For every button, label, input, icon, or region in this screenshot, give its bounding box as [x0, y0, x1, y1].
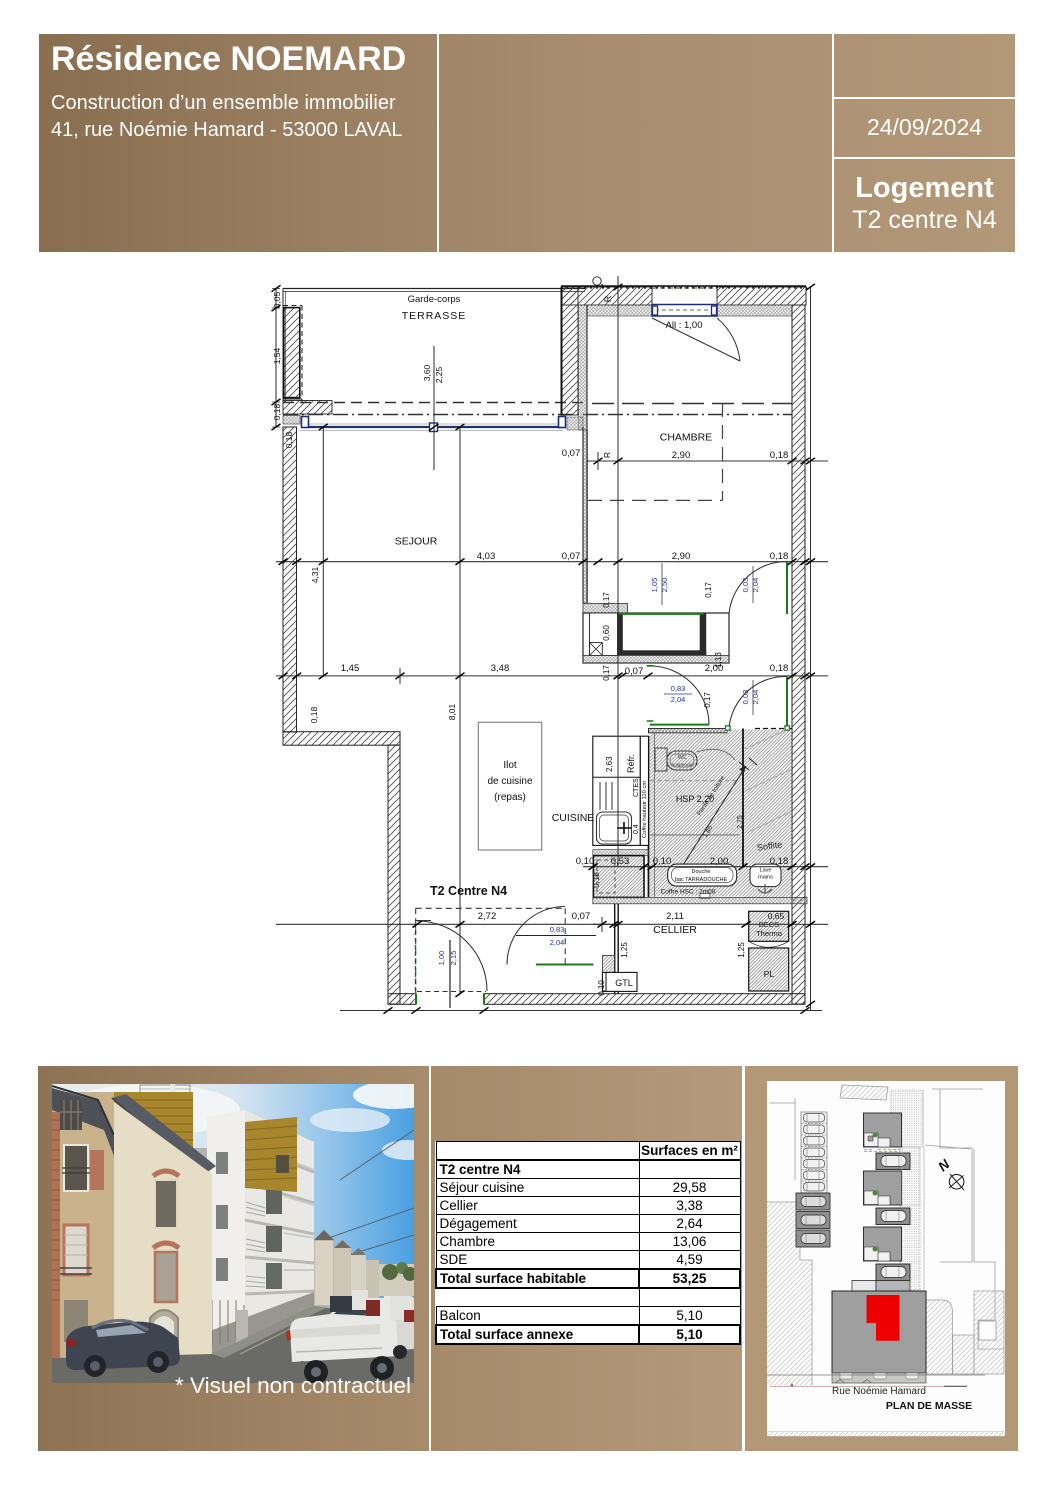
svg-text:Ilot: Ilot [503, 760, 517, 771]
svg-text:R: R [602, 452, 612, 458]
svg-text:Lave: Lave [760, 868, 772, 874]
svg-text:1,13: 1,13 [714, 652, 723, 668]
svg-text:0,18: 0,18 [770, 856, 789, 867]
svg-text:0,17: 0,17 [704, 582, 713, 598]
svg-text:GTL: GTL [615, 978, 633, 988]
svg-text:0,07: 0,07 [572, 911, 591, 922]
svg-text:0,07: 0,07 [562, 551, 581, 562]
svg-text:2,11: 2,11 [666, 911, 684, 922]
svg-text:2,04: 2,04 [751, 578, 760, 593]
svg-text:CELLIER: CELLIER [653, 924, 697, 936]
svg-text:0,10: 0,10 [576, 856, 595, 867]
svg-text:0,83: 0,83 [550, 925, 565, 934]
svg-text:R: R [603, 295, 613, 302]
svg-text:0,10: 0,10 [653, 856, 672, 867]
svg-text:(repas): (repas) [494, 792, 526, 803]
svg-text:N: N [935, 1156, 952, 1174]
svg-text:0,03: 0,03 [741, 578, 750, 593]
svg-text:2,04: 2,04 [751, 690, 760, 705]
svg-text:1,05: 1,05 [650, 578, 659, 593]
svg-text:2,50: 2,50 [660, 578, 669, 593]
svg-text:2,63: 2,63 [605, 756, 614, 772]
svg-text:0,18: 0,18 [592, 872, 601, 888]
svg-text:SEJOUR: SEJOUR [395, 536, 438, 548]
svg-text:All : 1,00: All : 1,00 [666, 320, 703, 331]
svg-text:0,65: 0,65 [768, 911, 785, 921]
svg-text:HSP 2,20: HSP 2,20 [676, 794, 714, 804]
svg-text:0,60: 0,60 [602, 625, 611, 641]
svg-text:8,01: 8,01 [447, 703, 457, 720]
svg-text:0,18: 0,18 [770, 450, 789, 461]
svg-text:0,17: 0,17 [703, 692, 712, 708]
svg-text:Réfr.: Réfr. [626, 754, 636, 773]
svg-text:0,17: 0,17 [602, 592, 611, 608]
svg-text:3,48: 3,48 [491, 663, 510, 674]
svg-text:4,03: 4,03 [477, 551, 496, 562]
svg-text:0,18: 0,18 [284, 431, 294, 448]
svg-text:CHAMBRE: CHAMBRE [660, 432, 713, 444]
svg-text:2,72: 2,72 [478, 911, 497, 922]
svg-text:0,07: 0,07 [562, 448, 581, 459]
svg-text:0,53: 0,53 [611, 856, 630, 867]
svg-text:T2 Centre N4: T2 Centre N4 [430, 884, 507, 898]
svg-text:0,05: 0,05 [272, 291, 282, 308]
svg-text:1,25: 1,25 [737, 942, 746, 958]
svg-text:Coffre hauteur 110 cm: Coffre hauteur 110 cm [642, 781, 648, 838]
svg-text:0,07: 0,07 [625, 666, 644, 677]
svg-text:CTES.: CTES. [633, 776, 640, 797]
svg-text:0,10: 0,10 [597, 980, 606, 996]
svg-text:2,04: 2,04 [671, 695, 686, 704]
svg-text:3,60: 3,60 [422, 364, 432, 381]
svg-text:0,18: 0,18 [770, 663, 789, 674]
svg-text:1,45: 1,45 [341, 663, 360, 674]
svg-text:0,83: 0,83 [671, 684, 686, 693]
svg-text:PL: PL [764, 969, 775, 979]
svg-text:TERRASSE: TERRASSE [402, 310, 467, 322]
svg-text:PLAN DE MASSE: PLAN DE MASSE [886, 1400, 972, 1412]
svg-text:0,18: 0,18 [309, 706, 319, 723]
svg-text:2,25: 2,25 [434, 366, 444, 383]
svg-text:Garde-corps: Garde-corps [408, 294, 461, 305]
svg-text:bac TARRADOUCHE: bac TARRADOUCHE [675, 877, 728, 883]
svg-text:Douche: Douche [692, 869, 711, 875]
svg-text:1,25: 1,25 [620, 942, 629, 958]
svg-text:0,03: 0,03 [741, 690, 750, 705]
svg-text:4,31: 4,31 [310, 566, 320, 583]
svg-text:Thermo: Thermo [756, 929, 782, 938]
svg-text:2,00: 2,00 [710, 856, 729, 867]
svg-text:1,54: 1,54 [272, 347, 282, 364]
svg-text:mains: mains [758, 875, 773, 881]
svg-text:de cuisine: de cuisine [487, 776, 532, 787]
svg-text:0,18: 0,18 [770, 551, 789, 562]
svg-text:0,18: 0,18 [272, 403, 282, 420]
svg-text:0,17: 0,17 [602, 665, 611, 681]
svg-text:2,90: 2,90 [672, 450, 691, 461]
svg-text:2,04: 2,04 [550, 938, 565, 947]
svg-text:2,75: 2,75 [737, 815, 744, 829]
svg-text:CUISINE: CUISINE [552, 812, 595, 824]
svg-text:1,00: 1,00 [437, 951, 446, 966]
svg-text:2,90: 2,90 [672, 551, 691, 562]
svg-text:0,4: 0,4 [633, 824, 640, 834]
svg-text:Rue Noémie Hamard: Rue Noémie Hamard [832, 1386, 926, 1397]
